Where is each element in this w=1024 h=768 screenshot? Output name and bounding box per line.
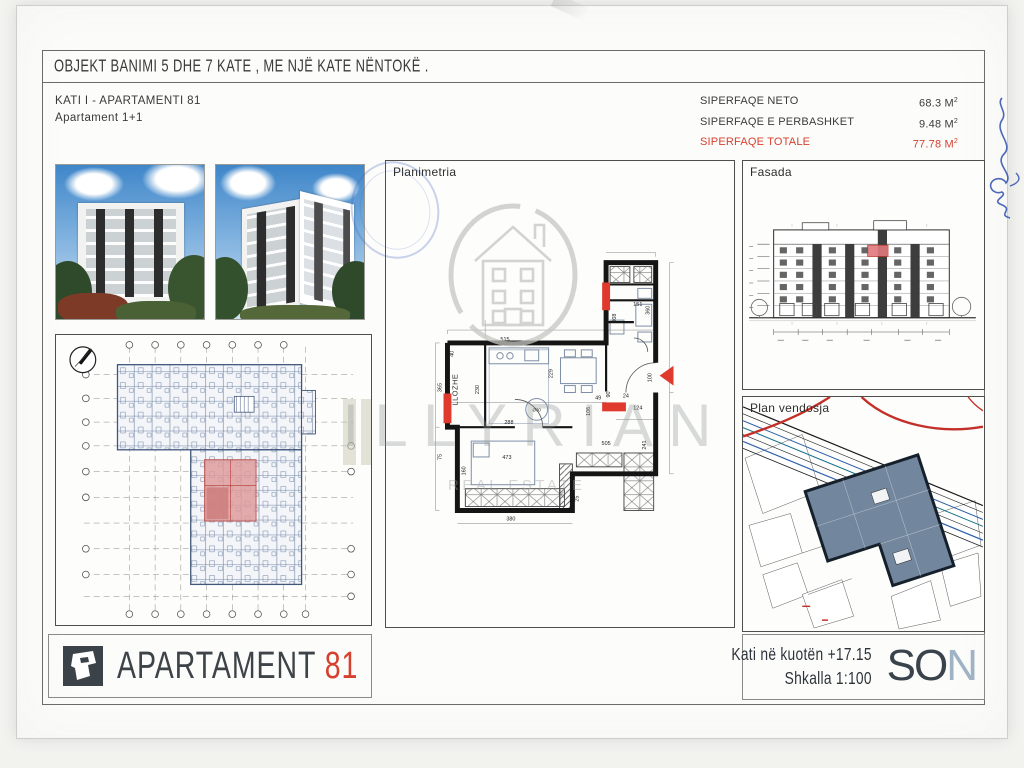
- svg-text:365: 365: [438, 383, 444, 392]
- scale-title-block: Kati në kuotën +17.15 Shkalla 1:100 SON: [742, 634, 985, 700]
- site-plan-label: Plan vendosja: [750, 401, 829, 415]
- area-table: SIPERFAQE NETO 68.3 M2 SIPERFAQE E PERBA…: [700, 92, 958, 154]
- area-value: 9.48 M2: [919, 113, 958, 134]
- building-footprint: [805, 455, 954, 602]
- svg-text:505: 505: [602, 441, 611, 447]
- svg-text:473: 473: [502, 455, 511, 461]
- room-label-llozhe: LLOZHE: [450, 374, 459, 406]
- svg-text:100: 100: [648, 373, 654, 382]
- svg-text:106: 106: [586, 407, 592, 416]
- area-row-neto: SIPERFAQE NETO 68.3 M2: [700, 92, 958, 113]
- site-map-drawing: [743, 397, 983, 630]
- sheet-title: OBJEKT BANIMI 5 DHE 7 KATE , ME NJË KATE…: [54, 56, 429, 76]
- building-floorplan-panel: [55, 334, 372, 626]
- svg-text:360: 360: [646, 306, 652, 315]
- area-label: SIPERFAQE TOTALE: [700, 133, 810, 154]
- elevation-drawing: [743, 179, 983, 387]
- subtitle-line2: Apartament 1+1: [55, 110, 201, 127]
- svg-text:288: 288: [504, 420, 513, 426]
- scan-artifact: [361, 399, 371, 465]
- apartment-logo-icon: [63, 646, 103, 686]
- entrance-arrow-icon: [660, 366, 674, 386]
- window-strips: [247, 206, 296, 310]
- svg-text:241: 241: [642, 441, 648, 450]
- svg-text:308: 308: [612, 314, 618, 323]
- fasada-panel: Fasada: [742, 160, 985, 390]
- title-band: OBJEKT BANIMI 5 DHE 7 KATE , ME NJË KATE…: [42, 50, 985, 83]
- planimetria-panel: Planimetria: [385, 160, 735, 628]
- apartment-plan-drawing: 515 229 230 288 473 160 365 151 308 360 …: [386, 161, 733, 626]
- project-number: 81: [325, 644, 359, 687]
- fasada-label: Fasada: [750, 165, 792, 179]
- svg-text:515: 515: [500, 337, 509, 343]
- area-row-perbashket: SIPERFAQE E PERBASHKET 9.48 M2: [700, 113, 958, 134]
- svg-text:230: 230: [475, 385, 481, 394]
- cloud: [220, 165, 276, 201]
- son-logo: SON: [887, 641, 976, 691]
- stove-label: Ø30: [532, 407, 541, 412]
- svg-text:40: 40: [449, 351, 455, 357]
- level-note: Kati në kuotën +17.15: [732, 643, 872, 667]
- project-name: APARTAMENT 81: [117, 644, 358, 688]
- shrubs: [240, 305, 350, 320]
- north-arrow-icon: [70, 347, 96, 373]
- svg-text:49: 49: [595, 395, 601, 401]
- area-label: SIPERFAQE NETO: [700, 92, 799, 113]
- building-photo-front: [55, 164, 205, 320]
- wardrobe-hatch: [624, 453, 654, 511]
- shrubs: [116, 301, 196, 320]
- scanned-sheet: { "header": { "title": "OBJEKT BANIMI 5 …: [0, 0, 1024, 768]
- building-face-left: [242, 199, 300, 317]
- wardrobe-hatch: [465, 489, 564, 507]
- area-value: 68.3 M2: [919, 92, 958, 113]
- svg-text:124: 124: [633, 405, 642, 411]
- highlighted-unit: [868, 245, 888, 256]
- svg-text:24: 24: [623, 393, 629, 399]
- subtitle-line1: KATI I - APARTAMENTI 81: [55, 93, 201, 110]
- building-floorplan-drawing: [56, 335, 370, 624]
- site-plan-panel: Plan vendosja: [742, 396, 985, 632]
- shaft-hatch: [610, 267, 630, 283]
- svg-text:90: 90: [606, 391, 612, 397]
- window-strips: [86, 209, 175, 297]
- cloud: [64, 167, 124, 201]
- svg-text:75: 75: [438, 454, 444, 460]
- building-photo-corner: [215, 164, 365, 320]
- project-title-block: APARTAMENT 81: [48, 634, 372, 698]
- svg-text:25: 25: [574, 496, 580, 502]
- shaft-hatch: [634, 267, 652, 283]
- wardrobe-hatch: [576, 453, 622, 467]
- svg-text:151: 151: [633, 302, 642, 308]
- svg-text:160: 160: [461, 466, 467, 475]
- highlighted-apartment: [205, 460, 256, 521]
- area-value: 77.78 M2: [913, 133, 958, 154]
- svg-text:380: 380: [506, 516, 515, 522]
- sheet-subtitle: KATI I - APARTAMENTI 81 Apartament 1+1: [55, 93, 201, 127]
- svg-text:229: 229: [549, 369, 555, 378]
- area-row-totale: SIPERFAQE TOTALE 77.78 M2: [700, 133, 958, 154]
- area-label: SIPERFAQE E PERBASHKET: [700, 113, 854, 134]
- scale-note: Shkalla 1:100: [732, 667, 872, 691]
- scan-artifact: [343, 399, 356, 465]
